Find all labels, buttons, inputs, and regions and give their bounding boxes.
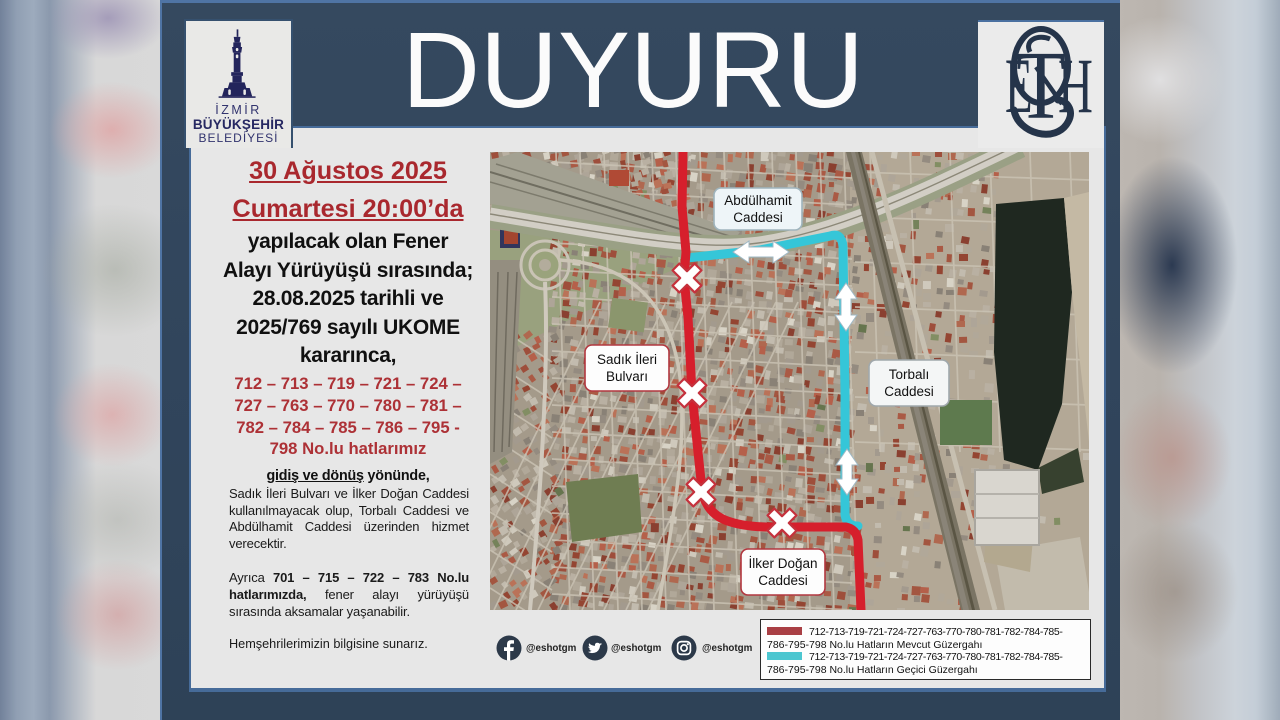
svg-text:BÜYÜKŞEHİR: BÜYÜKŞEHİR [193, 117, 284, 132]
svg-text:BELEDİYESİ: BELEDİYESİ [198, 131, 278, 145]
svg-text:Sadık İleri: Sadık İleri [597, 352, 657, 367]
svg-text:Caddesi: Caddesi [758, 573, 808, 588]
svg-text:Torbalı: Torbalı [889, 367, 930, 382]
svg-text:Caddesi: Caddesi [733, 210, 783, 225]
svg-text:İZMİR: İZMİR [215, 103, 262, 117]
svg-text:Abdülhamit: Abdülhamit [724, 193, 792, 208]
svg-text:Caddesi: Caddesi [884, 384, 934, 399]
svg-text:Bulvarı: Bulvarı [606, 369, 648, 384]
svg-text:İlker Doğan: İlker Doğan [748, 556, 817, 571]
svg-text:T: T [1016, 32, 1066, 140]
